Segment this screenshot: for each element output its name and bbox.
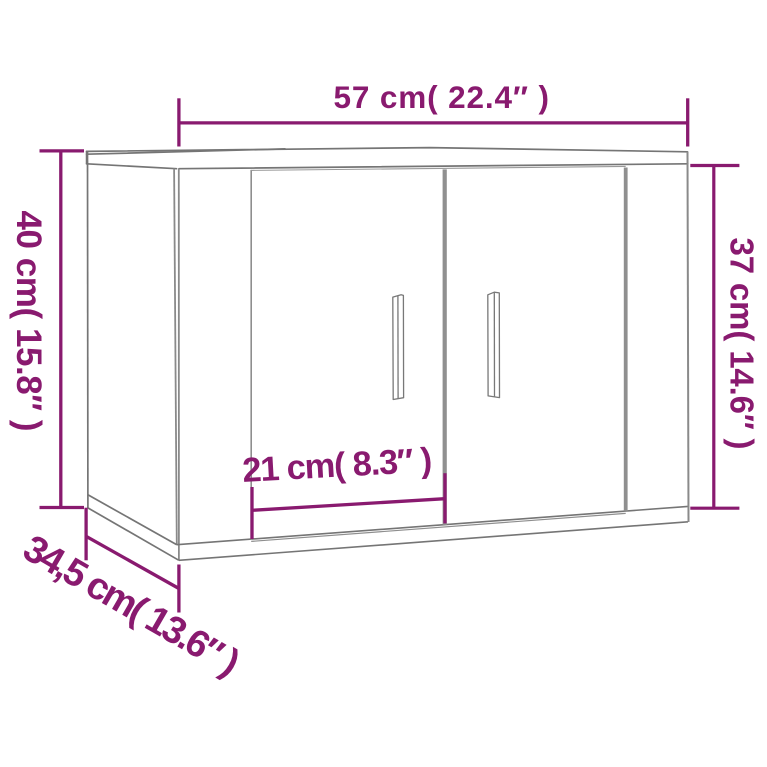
svg-text:37 cm( 14.6″ ): 37 cm( 14.6″ ) xyxy=(724,238,761,450)
svg-text:57 cm( 22.4″ ): 57 cm( 22.4″ ) xyxy=(334,79,550,115)
svg-text:40 cm( 15.8″ ): 40 cm( 15.8″ ) xyxy=(9,211,48,432)
